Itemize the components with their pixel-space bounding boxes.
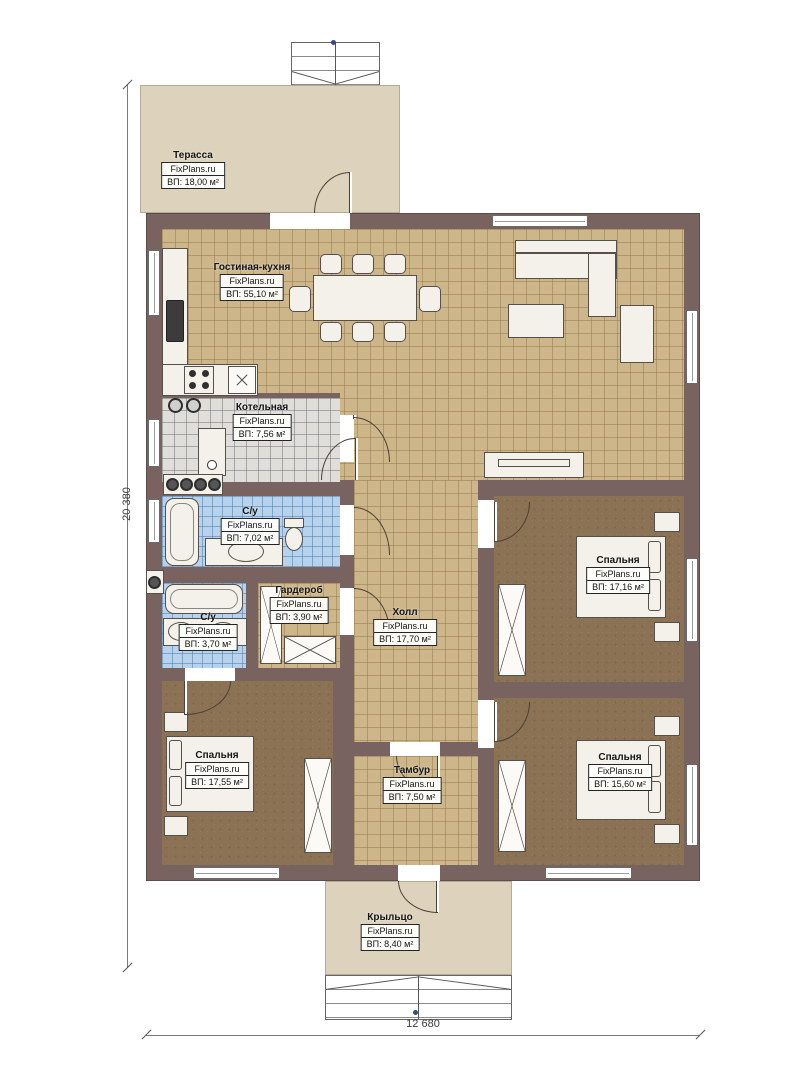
boiler-valve-icon	[207, 460, 217, 470]
room-area: ВП: 8,40 м²	[362, 938, 419, 950]
sofa-back	[515, 240, 617, 253]
brand-watermark: FixPlans.ru	[589, 765, 651, 778]
laundry-drum-icon	[194, 478, 207, 491]
dishwasher	[228, 366, 256, 394]
room-area: ВП: 17,55 м²	[186, 776, 248, 788]
room-area: ВП: 7,02 м²	[222, 532, 279, 544]
bathtub-2	[165, 584, 243, 614]
nightstand	[654, 622, 680, 642]
room-area: ВП: 3,90 м²	[271, 611, 328, 623]
burner-icon	[189, 382, 196, 389]
brand-watermark: FixPlans.ru	[234, 415, 291, 428]
room-name: Гостиная-кухня	[214, 262, 291, 273]
room-label-bathroom1: С/у FixPlans.ruВП: 7,02 м²	[221, 506, 280, 546]
bedroom3-south-window	[545, 867, 632, 879]
bedroom2-door-opening	[185, 668, 235, 681]
dining-chair	[320, 254, 342, 274]
dining-chair	[352, 322, 374, 342]
room-area: ВП: 18,00 м²	[162, 176, 224, 188]
bedroom3-door-opening	[478, 700, 494, 748]
room-label-vestibule: Тамбур FixPlans.ruВП: 7,50 м²	[383, 765, 442, 805]
dimension-line-horizontal	[146, 1035, 700, 1036]
bathroom1-door-opening	[340, 505, 354, 555]
brand-watermark: FixPlans.ru	[180, 625, 237, 638]
room-label-terrace: Терасса FixPlans.ruВП: 18,00 м²	[161, 150, 225, 190]
boiler-tank-icon	[168, 398, 183, 413]
room-area: ВП: 7,50 м²	[384, 791, 441, 803]
living-room-window	[492, 215, 588, 227]
kitchen-sink	[166, 300, 184, 342]
laundry-drum-icon	[180, 478, 193, 491]
laundry-drum-icon	[208, 478, 221, 491]
stove	[184, 366, 214, 394]
brand-watermark: FixPlans.ru	[374, 620, 436, 633]
bedroom1-window	[686, 558, 698, 642]
room-area: ВП: 3,70 м²	[180, 638, 237, 650]
nightstand	[164, 712, 188, 732]
stairs-direction-lines	[292, 43, 379, 85]
dining-chair	[384, 322, 406, 342]
room-name: Спальня	[185, 750, 249, 761]
terrace-stairs	[291, 42, 380, 86]
room-name: Спальня	[588, 752, 652, 763]
room-name: Терасса	[161, 150, 225, 161]
sofa-chaise	[588, 253, 616, 317]
brand-watermark: FixPlans.ru	[587, 568, 649, 581]
room-name: Котельная	[233, 402, 292, 413]
pillow	[169, 776, 182, 806]
pillow	[169, 740, 182, 770]
washing-machine-drum-icon	[148, 576, 161, 589]
nightstand	[654, 512, 680, 532]
pillow	[648, 579, 661, 611]
dining-chair	[384, 254, 406, 274]
terrace-deck	[140, 85, 400, 213]
dining-chair	[419, 286, 441, 312]
room-name: Гардероб	[270, 585, 329, 596]
marker-dot-top	[331, 40, 336, 45]
burner-icon	[202, 382, 209, 389]
wardrobe-closet	[284, 636, 336, 664]
room-area: ВП: 17,70 м²	[374, 633, 436, 645]
floor-plan: 20 380	[0, 0, 792, 1080]
brand-watermark: FixPlans.ru	[271, 598, 328, 611]
dining-table	[313, 275, 417, 321]
room-name: Спальня	[586, 555, 650, 566]
brand-watermark: FixPlans.ru	[221, 275, 283, 288]
bedroom2-closet	[304, 758, 332, 853]
dimension-width-label: 12 680	[373, 1018, 473, 1030]
dining-chair	[352, 254, 374, 274]
room-label-porch: Крыльцо FixPlans.ruВП: 8,40 м²	[361, 912, 420, 952]
entrance-door-opening	[398, 865, 440, 881]
room-name: Холл	[373, 607, 437, 618]
brand-watermark: FixPlans.ru	[186, 763, 248, 776]
wardrobe-door-opening	[340, 588, 354, 635]
brand-watermark: FixPlans.ru	[384, 778, 441, 791]
room-area: ВП: 15,60 м²	[589, 778, 651, 790]
room-name: С/у	[221, 506, 280, 517]
room-label-living-kitchen: Гостиная-кухня FixPlans.ruВП: 55,10 м²	[214, 262, 291, 302]
vestibule-door-opening	[390, 742, 440, 756]
bedroom3-closet	[498, 760, 526, 852]
room-label-wardrobe: Гардероб FixPlans.ruВП: 3,90 м²	[270, 585, 329, 625]
room-area: ВП: 7,56 м²	[234, 428, 291, 440]
bathroom1-window	[148, 499, 160, 543]
coffee-table	[508, 304, 564, 338]
porch-stairs	[325, 975, 512, 1020]
armchair	[620, 305, 654, 363]
stairs-direction-lines	[326, 976, 511, 1019]
kitchen-window	[148, 250, 160, 316]
room-label-bathroom2: С/у FixPlans.ruВП: 3,70 м²	[179, 612, 238, 652]
dining-chair	[320, 322, 342, 342]
bedroom2-window	[193, 867, 280, 879]
marker-dot-bottom	[413, 1010, 418, 1015]
bedroom1-closet	[498, 584, 526, 676]
brand-watermark: FixPlans.ru	[362, 925, 419, 938]
brand-watermark: FixPlans.ru	[162, 163, 224, 176]
room-name: Крыльцо	[361, 912, 420, 923]
room-area: ВП: 55,10 м²	[221, 288, 283, 300]
bathtub	[165, 498, 199, 566]
room-label-bedroom2: Спальня FixPlans.ruВП: 17,55 м²	[185, 750, 249, 790]
room-label-boiler: Котельная FixPlans.ruВП: 7,56 м²	[233, 402, 292, 442]
laundry-drum-icon	[166, 478, 179, 491]
pillow	[648, 541, 661, 573]
room-label-hall: Холл FixPlans.ruВП: 17,70 м²	[373, 607, 437, 647]
dining-chair	[289, 286, 311, 312]
room-name: С/у	[179, 612, 238, 623]
room-name: Тамбур	[383, 765, 442, 776]
toilet-bowl	[285, 527, 303, 551]
room-area: ВП: 17,16 м²	[587, 581, 649, 593]
boiler-tank-icon	[186, 398, 201, 413]
room-label-bedroom3: Спальня FixPlans.ruВП: 15,60 м²	[588, 752, 652, 792]
bedroom1-door-opening	[478, 500, 494, 548]
burner-icon	[202, 370, 209, 377]
tv	[498, 459, 570, 467]
boiler-window	[148, 419, 160, 467]
room-label-bedroom1: Спальня FixPlans.ruВП: 17,16 м²	[586, 555, 650, 595]
nightstand	[164, 816, 188, 836]
dimension-height-label: 20 380	[121, 464, 133, 544]
nightstand	[654, 716, 680, 736]
living-side-window	[686, 310, 698, 384]
bedroom3-window	[686, 764, 698, 846]
nightstand	[654, 824, 680, 844]
terrace-door-opening	[270, 213, 350, 229]
burner-icon	[189, 370, 196, 377]
brand-watermark: FixPlans.ru	[222, 519, 279, 532]
